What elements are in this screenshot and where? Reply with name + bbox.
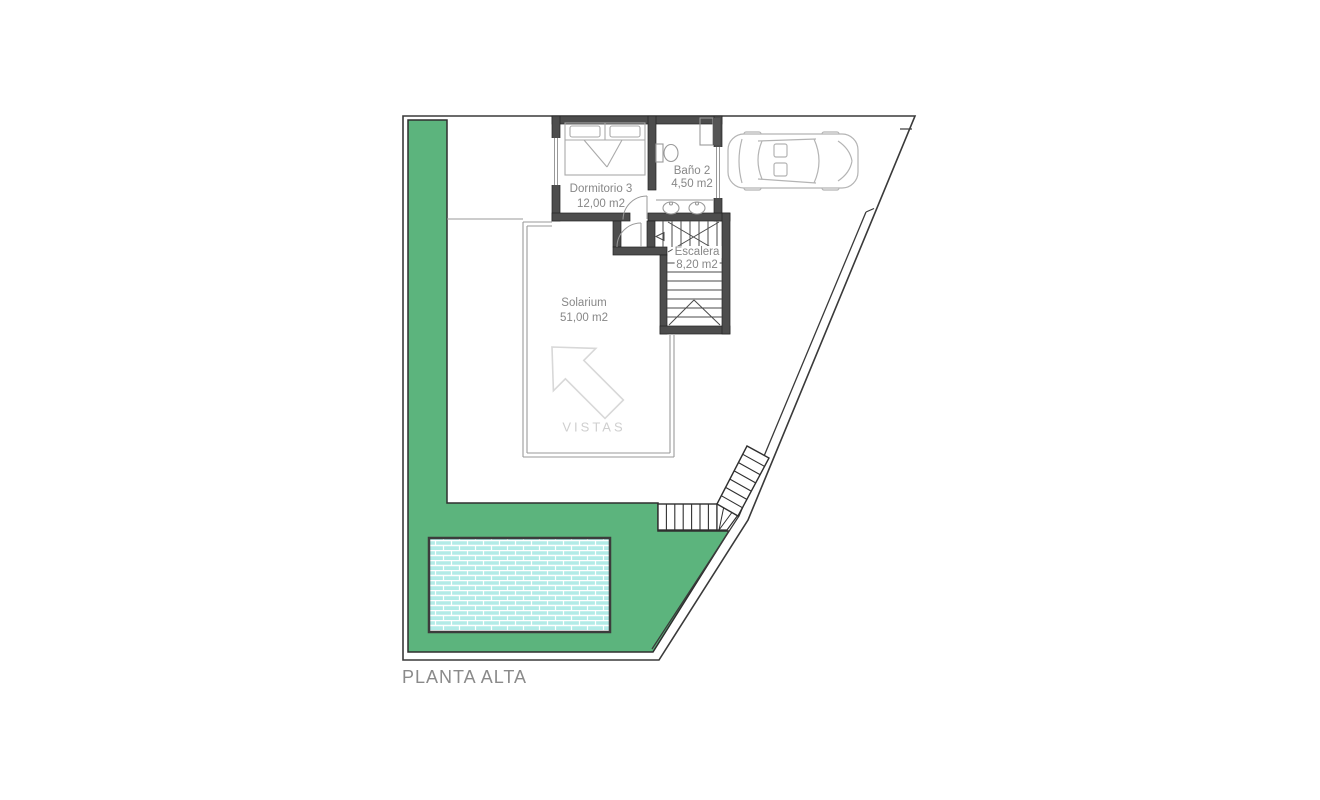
fence-gate-tick xyxy=(866,209,874,213)
room-name: Baño 2 xyxy=(671,165,713,178)
plan-title: PLANTA ALTA xyxy=(402,667,527,688)
vistas-arrow-icon xyxy=(552,347,623,418)
room-area: 8,20 m2 xyxy=(674,259,720,271)
room-label-escalera: Escalera 8,20 m2 xyxy=(673,246,722,272)
double-sink-icon xyxy=(656,200,714,214)
room-name: Dormitorio 3 xyxy=(570,182,633,197)
room-label-solarium: Solarium 51,00 m2 xyxy=(560,296,608,326)
bed-icon xyxy=(565,123,645,175)
room-label-bano2: Baño 2 4,50 m2 xyxy=(671,165,713,191)
window-bedroom xyxy=(551,138,561,185)
room-name: Escalera xyxy=(673,246,722,258)
room-area: 51,00 m2 xyxy=(560,311,608,326)
vistas-label: VISTAS xyxy=(562,420,625,435)
stair-upper-flight xyxy=(717,446,769,516)
exterior-stairs xyxy=(658,446,769,530)
room-area: 12,00 m2 xyxy=(570,197,633,212)
room-area: 4,50 m2 xyxy=(671,178,713,191)
room-label-dormitorio3: Dormitorio 3 12,00 m2 xyxy=(570,182,633,212)
window-bathroom xyxy=(713,147,723,198)
floor-plan-drawing xyxy=(0,0,1320,800)
floor-plan-canvas: Dormitorio 3 12,00 m2 Baño 2 4,50 m2 Esc… xyxy=(0,0,1320,800)
room-name: Solarium xyxy=(560,296,608,311)
car-icon xyxy=(728,132,858,190)
pool xyxy=(429,538,610,632)
toilet-icon xyxy=(656,144,678,162)
